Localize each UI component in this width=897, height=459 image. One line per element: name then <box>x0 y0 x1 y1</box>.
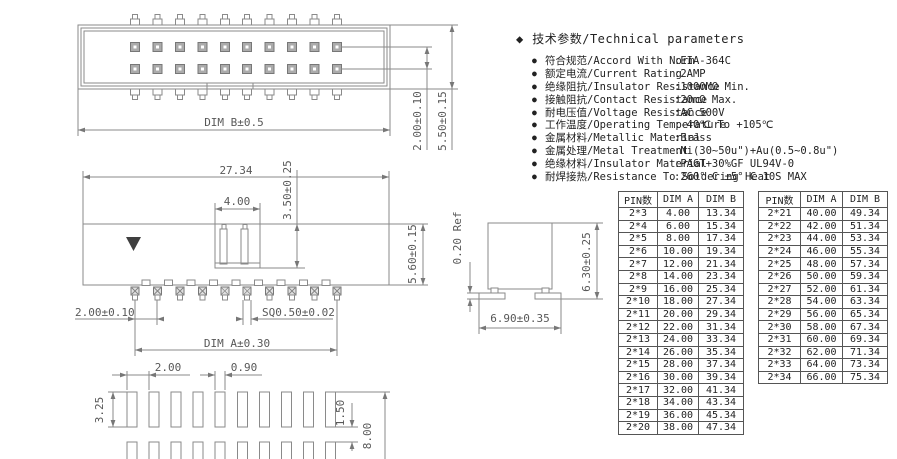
dim-end-height-label: 6.30±0.25 <box>580 232 593 292</box>
table-cell: 4.00 <box>658 208 699 221</box>
table-row: 2*2446.0055.34 <box>759 245 888 258</box>
table-cell: 35.34 <box>699 346 744 359</box>
table-cell: 2*8 <box>619 270 658 283</box>
table-cell: 18.00 <box>658 296 699 309</box>
table-cell: 34.00 <box>658 396 699 409</box>
table-row: 2*3466.0075.34 <box>759 371 888 384</box>
table-cell: 53.34 <box>843 233 888 246</box>
table-row: 2*3364.0073.34 <box>759 359 888 372</box>
table-cell: 58.00 <box>801 321 843 334</box>
table-row: 2*46.0015.34 <box>619 220 744 233</box>
table-cell: 6.00 <box>658 220 699 233</box>
pin-table-1: PIN数DIM ADIM B2*34.0013.342*46.0015.342*… <box>618 191 744 435</box>
table-cell: 51.34 <box>843 220 888 233</box>
table-cell: 2*17 <box>619 384 658 397</box>
table-row: 2*1426.0035.34 <box>619 346 744 359</box>
table-cell: 75.34 <box>843 371 888 384</box>
table-cell: 67.34 <box>843 321 888 334</box>
table-cell: 2*16 <box>619 371 658 384</box>
table-cell: 55.34 <box>843 245 888 258</box>
column-header: DIM B <box>699 192 744 208</box>
parameter-value: :20mΩ Max. <box>674 94 737 107</box>
table-cell: 46.00 <box>801 245 843 258</box>
table-cell: 2*33 <box>759 359 801 372</box>
table-cell: 60.00 <box>801 333 843 346</box>
table-cell: 2*7 <box>619 258 658 271</box>
table-row: 2*2854.0063.34 <box>759 296 888 309</box>
table-row: 2*1222.0031.34 <box>619 321 744 334</box>
table-cell: 19.34 <box>699 245 744 258</box>
dim-key-depth-label: 3.50±0.25 <box>281 160 294 220</box>
parameter-item: ●金属处理/Metal Treatment:Ni(30~50u")+Au(0.5… <box>516 145 894 158</box>
table-cell: 41.34 <box>699 384 744 397</box>
table-cell: 64.00 <box>801 359 843 372</box>
table-row: 2*1834.0043.34 <box>619 396 744 409</box>
table-row: 2*814.0023.34 <box>619 270 744 283</box>
table-cell: 2*26 <box>759 270 801 283</box>
dim-standoff-label: 0.20 Ref <box>451 212 464 265</box>
footprint-view: 2.00 0.90 3.25 1.50 8.00 <box>93 361 390 459</box>
table-cell: 2*9 <box>619 283 658 296</box>
table-header-row: PIN数DIM ADIM B <box>759 192 888 208</box>
table-cell: 15.34 <box>699 220 744 233</box>
table-cell: 2*20 <box>619 422 658 435</box>
table-cell: 2*5 <box>619 233 658 246</box>
table-cell: 2*34 <box>759 371 801 384</box>
parameter-item: ●绝缘材料/Insulator Material:PA6T+30%GF UL94… <box>516 158 894 171</box>
parameter-value: :2AMP <box>674 68 706 81</box>
pin-table-2: PIN数DIM ADIM B2*2140.0049.342*2242.0051.… <box>758 191 888 384</box>
table-cell: 59.34 <box>843 270 888 283</box>
parameter-value: :AC 500V <box>674 107 725 120</box>
table-cell: 65.34 <box>843 308 888 321</box>
table-cell: 38.00 <box>658 422 699 435</box>
table-row: 2*1936.0045.34 <box>619 409 744 422</box>
column-header: DIM A <box>801 192 843 208</box>
table-cell: 43.34 <box>699 396 744 409</box>
table-cell: 27.34 <box>699 296 744 309</box>
table-cell: 48.00 <box>801 258 843 271</box>
table-cell: 2*10 <box>619 296 658 309</box>
dim-pad-width-label: 0.90 <box>231 361 258 374</box>
table-cell: 29.34 <box>699 308 744 321</box>
table-cell: 57.34 <box>843 258 888 271</box>
parameter-item: ●耐电压值/Voltage Resistance:AC 500V <box>516 107 894 120</box>
table-row: 2*2344.0053.34 <box>759 233 888 246</box>
table-cell: 2*31 <box>759 333 801 346</box>
parameter-item: ●工作温度/Operating Temperature:-40℃ To +105… <box>516 119 894 132</box>
dim-b-label: DIM B±0.5 <box>204 116 264 129</box>
table-cell: 8.00 <box>658 233 699 246</box>
table-cell: 2*4 <box>619 220 658 233</box>
table-cell: 2*23 <box>759 233 801 246</box>
parameter-item: ●符合规范/Accord With Norm:EIA-364C <box>516 55 894 68</box>
table-cell: 2*28 <box>759 296 801 309</box>
bullet-icon: ● <box>532 171 537 183</box>
table-cell: 12.00 <box>658 258 699 271</box>
table-cell: 36.00 <box>658 409 699 422</box>
table-cell: 50.00 <box>801 270 843 283</box>
table-cell: 52.00 <box>801 283 843 296</box>
bullet-icon: ● <box>532 107 537 119</box>
table-cell: 66.00 <box>801 371 843 384</box>
dim-pad-pitch-label: 2.00 <box>155 361 182 374</box>
bullet-icon: ● <box>532 81 537 93</box>
table-cell: 2*6 <box>619 245 658 258</box>
table-cell: 2*24 <box>759 245 801 258</box>
table-cell: 37.34 <box>699 359 744 372</box>
parameter-value: :Ni(30~50u")+Au(0.5~0.8u") <box>674 145 838 158</box>
table-cell: 17.34 <box>699 233 744 246</box>
parameter-label: 额定电流/Current Rating <box>545 68 682 81</box>
parameter-item: ●额定电流/Current Rating:2AMP <box>516 68 894 81</box>
dim-row-pitch-label: 2.00±0.10 <box>411 91 424 151</box>
table-cell: 2*19 <box>619 409 658 422</box>
table-cell: 2*27 <box>759 283 801 296</box>
table-cell: 20.00 <box>658 308 699 321</box>
bullet-icon: ● <box>532 94 537 106</box>
table-cell: 39.34 <box>699 371 744 384</box>
dim-pin-size-label: SQ0.50±0.02 <box>262 306 335 319</box>
parameter-value: :260° C ±5° C 10S MAX <box>674 171 807 184</box>
dim-pad-height-label: 3.25 <box>93 397 106 424</box>
bullet-icon: ● <box>532 55 537 67</box>
column-header: PIN数 <box>759 192 801 208</box>
parameter-value: :1000MΩ Min. <box>674 81 750 94</box>
column-header: DIM B <box>843 192 888 208</box>
table-row: 2*916.0025.34 <box>619 283 744 296</box>
table-row: 2*2752.0061.34 <box>759 283 888 296</box>
table-cell: 2*25 <box>759 258 801 271</box>
table-cell: 22.00 <box>658 321 699 334</box>
table-row: 2*3262.0071.34 <box>759 346 888 359</box>
table-cell: 71.34 <box>843 346 888 359</box>
table-row: 2*3058.0067.34 <box>759 321 888 334</box>
table-cell: 33.34 <box>699 333 744 346</box>
table-cell: 2*12 <box>619 321 658 334</box>
table-cell: 2*29 <box>759 308 801 321</box>
table-cell: 44.00 <box>801 233 843 246</box>
table-row: 2*2548.0057.34 <box>759 258 888 271</box>
table-cell: 2*22 <box>759 220 801 233</box>
parameter-label: 金属处理/Metal Treatment <box>545 145 688 158</box>
bullet-icon: ● <box>532 132 537 144</box>
bullet-icon: ● <box>532 68 537 80</box>
table-cell: 69.34 <box>843 333 888 346</box>
table-row: 2*1018.0027.34 <box>619 296 744 309</box>
table-cell: 42.00 <box>801 220 843 233</box>
table-cell: 2*32 <box>759 346 801 359</box>
top-view: DIM B±0.5 2.00±0.10 5.50±0.15 <box>78 15 458 151</box>
table-cell: 14.00 <box>658 270 699 283</box>
table-cell: 13.34 <box>699 208 744 221</box>
parameter-item: ●金属材料/Metallic Material:Brass <box>516 132 894 145</box>
dim-span-label: 8.00 <box>361 423 374 450</box>
table-cell: 45.34 <box>699 409 744 422</box>
dim-key-width-label: 4.00 <box>224 195 251 208</box>
end-view: 0.20 Ref 6.30±0.25 6.90±0.35 <box>451 212 603 334</box>
table-cell: 73.34 <box>843 359 888 372</box>
table-row: 2*3160.0069.34 <box>759 333 888 346</box>
diamond-icon: ◆ <box>516 32 523 46</box>
table-row: 2*1732.0041.34 <box>619 384 744 397</box>
table-cell: 47.34 <box>699 422 744 435</box>
table-cell: 61.34 <box>843 283 888 296</box>
table-row: 2*34.0013.34 <box>619 208 744 221</box>
table-cell: 16.00 <box>658 283 699 296</box>
table-row: 2*1630.0039.34 <box>619 371 744 384</box>
table-cell: 26.00 <box>658 346 699 359</box>
bullet-icon: ● <box>532 158 537 170</box>
table-row: 2*610.0019.34 <box>619 245 744 258</box>
table-cell: 2*11 <box>619 308 658 321</box>
parameter-item: ●接触阻抗/Contact Resistance:20mΩ Max. <box>516 94 894 107</box>
bullet-icon: ● <box>532 145 537 157</box>
parameter-value: :Brass <box>674 132 712 145</box>
table-row: 2*1324.0033.34 <box>619 333 744 346</box>
bullet-icon: ● <box>532 119 537 131</box>
dim-a-label: DIM A±0.30 <box>204 337 270 350</box>
table-cell: 63.34 <box>843 296 888 309</box>
table-cell: 40.00 <box>801 208 843 221</box>
dim-overall-width-label: 27.34 <box>219 164 252 177</box>
parameter-value: :PA6T+30%GF UL94V-0 <box>674 158 794 171</box>
parameter-value: :EIA-364C <box>674 55 731 68</box>
parameters-title: 技术参数/Technical parameters <box>532 32 744 46</box>
column-header: DIM A <box>658 192 699 208</box>
table-cell: 2*15 <box>619 359 658 372</box>
table-cell: 25.34 <box>699 283 744 296</box>
parameter-item: ●绝缘阻抗/Insulator Resistance:1000MΩ Min. <box>516 81 894 94</box>
dim-row-gap-label: 1.50 <box>334 400 347 427</box>
table-cell: 24.00 <box>658 333 699 346</box>
dim-body-width-label: 5.50±0.15 <box>436 91 449 151</box>
table-row: 2*2242.0051.34 <box>759 220 888 233</box>
table-cell: 31.34 <box>699 321 744 334</box>
parameter-label: 符合规范/Accord With Norm <box>545 55 694 68</box>
table-cell: 30.00 <box>658 371 699 384</box>
table-cell: 54.00 <box>801 296 843 309</box>
table-cell: 56.00 <box>801 308 843 321</box>
table-row: 2*2650.0059.34 <box>759 270 888 283</box>
table-row: 2*1120.0029.34 <box>619 308 744 321</box>
parameters-list: ●符合规范/Accord With Norm:EIA-364C●额定电流/Cur… <box>516 55 894 184</box>
table-cell: 2*3 <box>619 208 658 221</box>
table-cell: 49.34 <box>843 208 888 221</box>
table-row: 2*2038.0047.34 <box>619 422 744 435</box>
table-cell: 2*14 <box>619 346 658 359</box>
dim-end-width-label: 6.90±0.35 <box>490 312 550 325</box>
table-cell: 2*13 <box>619 333 658 346</box>
table-cell: 28.00 <box>658 359 699 372</box>
table-cell: 21.34 <box>699 258 744 271</box>
parameters-title-row: ◆技术参数/Technical parameters <box>516 30 894 48</box>
table-row: 2*58.0017.34 <box>619 233 744 246</box>
table-header-row: PIN数DIM ADIM B <box>619 192 744 208</box>
dim-body-height-label: 5.60±0.15 <box>406 224 419 284</box>
dim-pin-pitch-label: 2.00±0.10 <box>75 306 135 319</box>
parameter-item: ●耐焊接热/Resistance To Soldering Heat:260° … <box>516 171 894 184</box>
table-row: 2*2140.0049.34 <box>759 208 888 221</box>
table-row: 2*2956.0065.34 <box>759 308 888 321</box>
technical-parameters-panel: ◆技术参数/Technical parameters ●符合规范/Accord … <box>516 30 894 184</box>
table-cell: 10.00 <box>658 245 699 258</box>
table-cell: 2*30 <box>759 321 801 334</box>
table-cell: 32.00 <box>658 384 699 397</box>
column-header: PIN数 <box>619 192 658 208</box>
table-row: 2*1528.0037.34 <box>619 359 744 372</box>
parameter-value: :-40℃ To +105℃ <box>674 119 773 132</box>
table-row: 2*712.0021.34 <box>619 258 744 271</box>
table-cell: 62.00 <box>801 346 843 359</box>
table-cell: 2*21 <box>759 208 801 221</box>
side-view: 27.34 4.00 3.50±0.25 5.60±0.15 2.00±0.10… <box>75 160 428 356</box>
table-cell: 2*18 <box>619 396 658 409</box>
table-cell: 23.34 <box>699 270 744 283</box>
